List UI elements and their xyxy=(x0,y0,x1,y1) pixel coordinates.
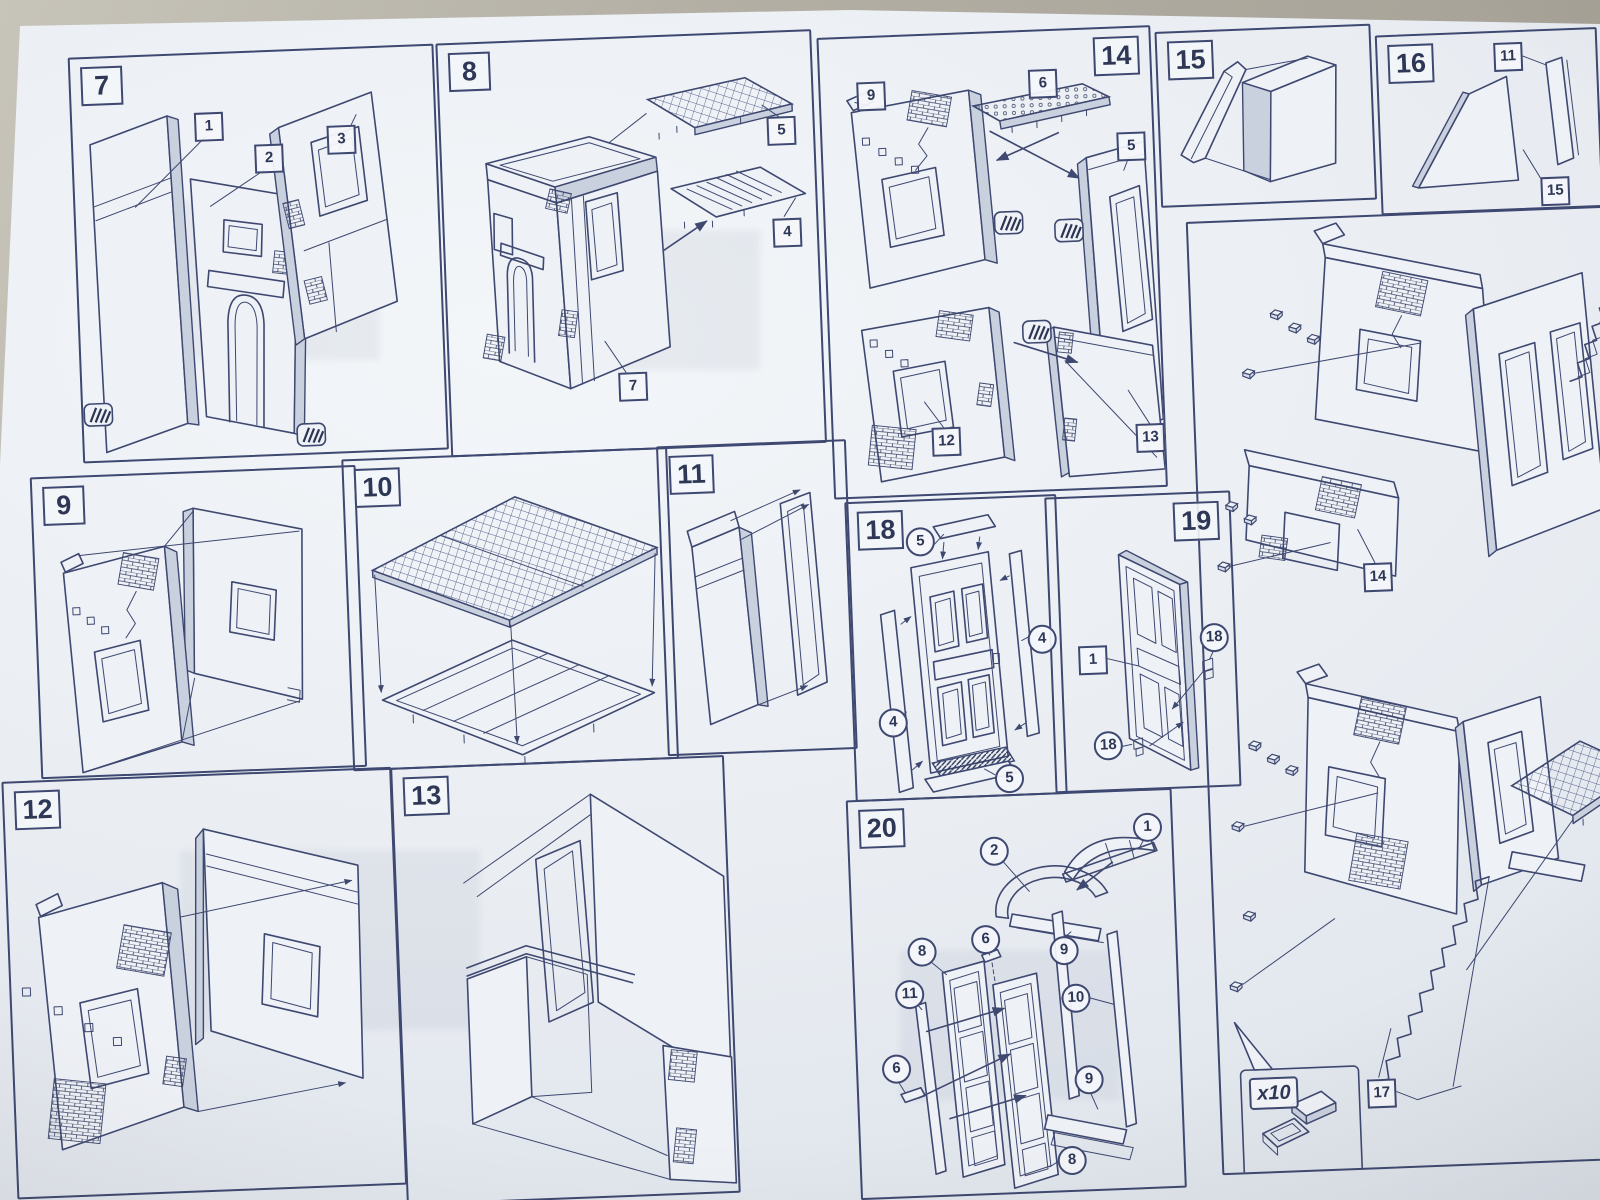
damaged-wall xyxy=(18,882,199,1151)
jamb-part-10 xyxy=(1107,931,1137,1128)
part-callout: 5 xyxy=(766,116,796,146)
step-number: 10 xyxy=(354,467,402,508)
panel-assembly-17: 14 17 x10 xyxy=(1186,205,1600,1175)
panel-step-16: 16 11 15 xyxy=(1375,27,1600,215)
part-callout: 1 xyxy=(194,112,224,142)
peg-icon xyxy=(1232,821,1244,831)
door-part-1 xyxy=(1118,548,1198,773)
panel-step-8: 8 xyxy=(435,29,827,457)
frame-piece xyxy=(780,492,828,695)
panel-grid: 7 xyxy=(0,0,1600,1200)
panel-step-11: 11 xyxy=(656,439,858,756)
part-callout: 3 xyxy=(326,125,356,155)
assembled-building-part-7 xyxy=(475,134,672,392)
step-number: 8 xyxy=(448,52,491,93)
tall-back-wall xyxy=(590,789,731,1088)
part-callout: 13 xyxy=(1135,423,1165,453)
window-wall xyxy=(187,823,366,1084)
part-callout: 12 xyxy=(931,427,961,457)
edge-strip-part-11 xyxy=(1546,57,1574,165)
peg-icon xyxy=(1243,369,1255,379)
sill-strip xyxy=(1044,1112,1127,1147)
step-number: 18 xyxy=(857,510,905,551)
assembly-arrow xyxy=(730,490,801,521)
peg-icon xyxy=(1218,562,1230,572)
leader-line xyxy=(1377,1029,1393,1078)
step-number: 13 xyxy=(403,776,451,817)
door-leaf xyxy=(910,551,1008,773)
panel-step-15: 15 xyxy=(1154,24,1377,208)
ledge-wall-subassembly-14 xyxy=(1243,444,1402,582)
peg-icon xyxy=(1289,323,1301,333)
wall-part-1 xyxy=(89,115,200,453)
panel-step-18: 18 5 xyxy=(844,494,1067,802)
base-frame xyxy=(380,635,657,770)
damaged-wall xyxy=(61,546,195,774)
arch-frame-part-2 xyxy=(994,864,1108,919)
wedge-piece xyxy=(901,1088,926,1103)
staircase xyxy=(1367,877,1497,1102)
peg-icon xyxy=(1226,501,1238,511)
peg-icon xyxy=(1249,741,1261,751)
upper-door-wall xyxy=(1464,272,1600,557)
peg-icon xyxy=(1267,754,1279,764)
part-callout: 4 xyxy=(772,218,802,248)
peg-icon xyxy=(1270,310,1282,320)
step-number: 15 xyxy=(1167,40,1215,81)
glue-icon xyxy=(297,423,326,446)
step-number: 20 xyxy=(858,808,906,849)
glue-icon xyxy=(84,403,113,426)
panel-step-14: 14 xyxy=(816,25,1167,499)
peg-icon xyxy=(1243,911,1255,921)
glue-icon xyxy=(1022,320,1051,343)
part-callout: 7 xyxy=(618,372,648,402)
column-piece xyxy=(687,510,769,725)
peg-icon xyxy=(1286,765,1298,775)
photo-of-instruction-sheet: 7 xyxy=(0,0,1600,1200)
upper-parapet-wall xyxy=(1308,217,1495,461)
assembly-arrow xyxy=(990,128,1079,181)
peg-icon xyxy=(1230,982,1242,992)
assembly-arrow xyxy=(996,133,1059,160)
step7-diagram xyxy=(70,46,447,462)
tiled-roof-panel xyxy=(370,491,660,632)
glue-icon xyxy=(994,211,1023,234)
step-number: 14 xyxy=(1093,36,1141,77)
step-number: 16 xyxy=(1387,43,1435,84)
part-callout: 9 xyxy=(856,81,886,111)
step12-diagram xyxy=(3,769,405,1198)
panel-step-9: 9 xyxy=(30,465,367,779)
assembly-arrow xyxy=(375,575,381,692)
panel-step-7: 7 xyxy=(68,44,449,464)
glue-icon xyxy=(1055,219,1084,242)
assembly-arrow xyxy=(740,505,809,540)
wall-part-9 xyxy=(847,87,998,288)
lower-parapet-wall xyxy=(1297,659,1467,920)
panel-step-20: 20 xyxy=(846,788,1187,1200)
left-jamb-strip xyxy=(880,610,913,793)
part-callout: 17 xyxy=(1367,1078,1397,1108)
wall-part-13 xyxy=(1046,323,1166,477)
part-callout: 2 xyxy=(254,144,284,174)
window-wall xyxy=(179,504,309,707)
damaged-side-wall xyxy=(663,1043,736,1186)
peg-icon xyxy=(1307,334,1319,344)
panel-step-13: 13 xyxy=(390,755,741,1200)
part-callout: 15 xyxy=(1540,176,1570,206)
fanlight-part-1 xyxy=(1061,836,1158,882)
assembly17-diagram xyxy=(1188,207,1600,1173)
window-frame-piece xyxy=(535,840,594,1022)
assembly-arrow xyxy=(197,1083,346,1112)
panel-step-10: 10 xyxy=(341,447,679,771)
step-number: 11 xyxy=(668,454,714,495)
quantity-label: x10 xyxy=(1249,1076,1300,1110)
step-number: 12 xyxy=(14,790,62,831)
part-callout: 1 xyxy=(1078,645,1108,675)
part-callout: 14 xyxy=(1363,562,1393,592)
step13-diagram xyxy=(392,757,738,1200)
step-number: 19 xyxy=(1172,501,1220,542)
step-number: 7 xyxy=(80,66,123,107)
panel-step-12: 12 xyxy=(1,767,407,1200)
assembly-arrow xyxy=(647,554,660,686)
step-number: 9 xyxy=(42,485,85,526)
part-callout: 5 xyxy=(1116,131,1146,161)
part-callout: 6 xyxy=(1028,69,1058,99)
part-callout: 11 xyxy=(1493,42,1523,72)
join-lines xyxy=(460,794,594,897)
